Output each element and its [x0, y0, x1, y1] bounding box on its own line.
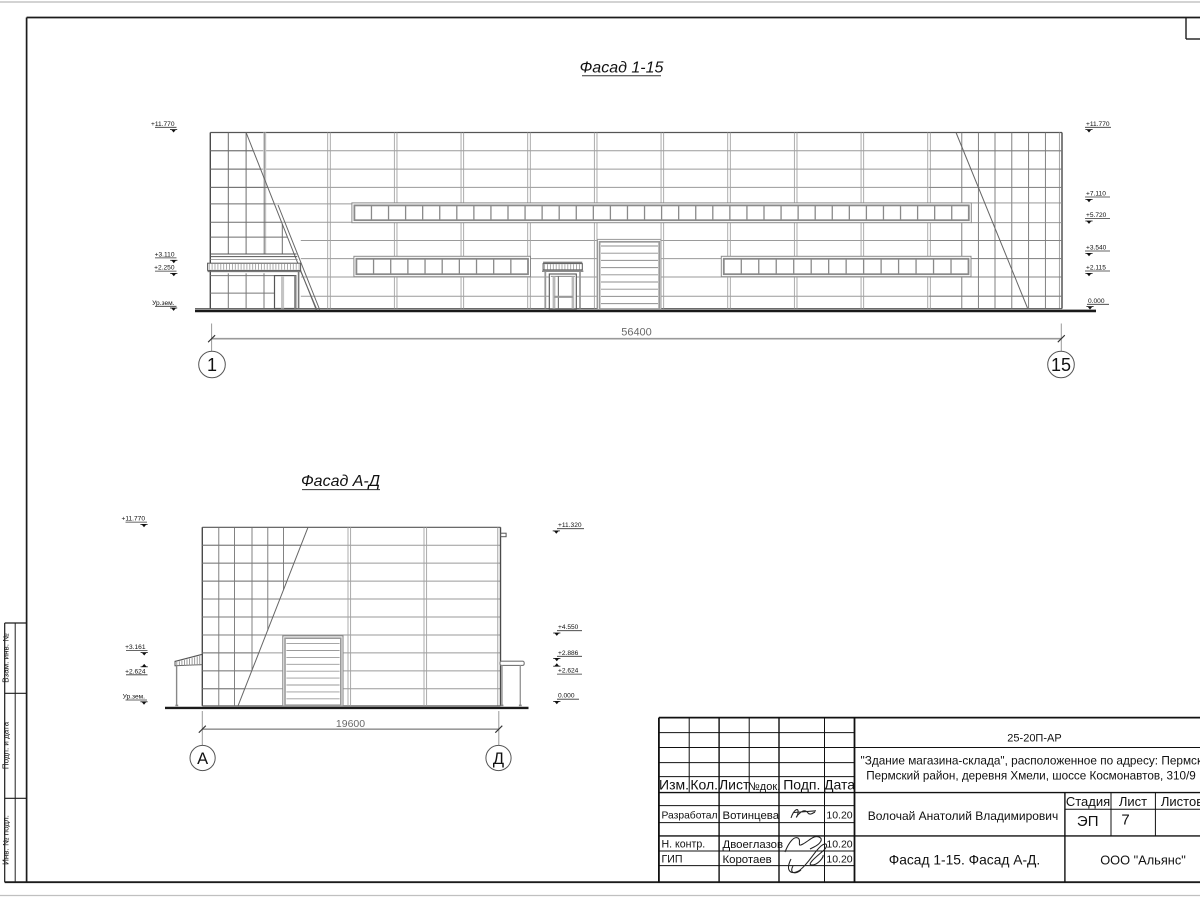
- svg-text:№док.: №док.: [748, 781, 780, 793]
- svg-text:Волочай Анатолий Владимирович: Волочай Анатолий Владимирович: [868, 809, 1059, 823]
- svg-text:Фасад 1-15: Фасад 1-15: [580, 60, 664, 77]
- svg-text:1: 1: [207, 355, 217, 375]
- svg-text:+5.720: +5.720: [1086, 212, 1107, 219]
- svg-text:ГИП: ГИП: [662, 854, 683, 866]
- svg-text:0.000: 0.000: [1088, 298, 1105, 305]
- svg-text:10.20: 10.20: [826, 853, 852, 865]
- svg-text:Лист: Лист: [719, 777, 750, 793]
- svg-text:+3.161: +3.161: [125, 644, 146, 651]
- svg-text:19600: 19600: [336, 718, 365, 730]
- svg-text:Лист: Лист: [1119, 794, 1147, 809]
- svg-text:+2.886: +2.886: [558, 650, 579, 657]
- svg-text:Пермский район, деревня Хмели,: Пермский район, деревня Хмели, шоссе Кос…: [866, 770, 1196, 783]
- svg-text:ЭП: ЭП: [1077, 813, 1099, 830]
- svg-text:Н. контр.: Н. контр.: [662, 839, 706, 851]
- svg-text:Дата: Дата: [824, 777, 855, 793]
- svg-text:Фасад А-Д: Фасад А-Д: [301, 473, 380, 490]
- svg-text:15: 15: [1051, 355, 1071, 375]
- svg-text:+2.624: +2.624: [125, 668, 146, 675]
- svg-text:"Здание магазина-склада", расп: "Здание магазина-склада", расположенное …: [861, 754, 1200, 768]
- svg-text:+11.770: +11.770: [1086, 121, 1110, 128]
- svg-text:+4.550: +4.550: [558, 624, 579, 631]
- svg-text:0.000: 0.000: [558, 693, 575, 700]
- svg-text:ООО "Альянс": ООО "Альянс": [1100, 853, 1186, 868]
- svg-text:+3.540: +3.540: [1086, 245, 1107, 252]
- svg-text:Коротаев: Коротаев: [723, 854, 772, 866]
- svg-text:Д: Д: [493, 750, 504, 768]
- svg-text:Взам. инв. №: Взам. инв. №: [2, 633, 11, 683]
- svg-text:Подп. и дата: Подп. и дата: [2, 721, 11, 769]
- svg-text:+2.250: +2.250: [154, 265, 175, 272]
- svg-text:Ур.зем.: Ур.зем.: [123, 694, 146, 701]
- svg-text:+2.115: +2.115: [1086, 265, 1106, 272]
- svg-text:7: 7: [1121, 812, 1129, 829]
- svg-text:56400: 56400: [621, 327, 652, 339]
- svg-text:+2.624: +2.624: [558, 668, 579, 675]
- svg-text:Вотинцева: Вотинцева: [723, 810, 780, 822]
- svg-text:+7.110: +7.110: [1086, 191, 1106, 198]
- svg-text:10.20: 10.20: [826, 810, 852, 822]
- svg-text:+11.770: +11.770: [121, 516, 145, 523]
- svg-text:Фасад 1-15. Фасад А-Д.: Фасад 1-15. Фасад А-Д.: [889, 853, 1041, 868]
- svg-text:Стадия: Стадия: [1066, 794, 1110, 809]
- svg-text:Двоеглазов: Двоеглазов: [723, 839, 784, 851]
- svg-text:Разработал: Разработал: [662, 810, 718, 822]
- svg-text:Ур.зем.: Ур.зем.: [152, 300, 175, 307]
- svg-text:Подп.: Подп.: [783, 777, 820, 793]
- svg-text:Листов: Листов: [1161, 794, 1200, 809]
- svg-text:Инв. № подл.: Инв. № подл.: [2, 815, 11, 865]
- svg-text:25-20П-АР: 25-20П-АР: [1007, 733, 1061, 745]
- svg-text:+11.770: +11.770: [151, 121, 175, 128]
- svg-text:10.20: 10.20: [826, 838, 852, 850]
- svg-text:+11.320: +11.320: [558, 522, 582, 529]
- svg-text:А: А: [197, 750, 208, 768]
- svg-text:+3.110: +3.110: [155, 251, 175, 258]
- svg-text:Кол.: Кол.: [690, 777, 718, 793]
- svg-text:Изм.: Изм.: [659, 777, 689, 793]
